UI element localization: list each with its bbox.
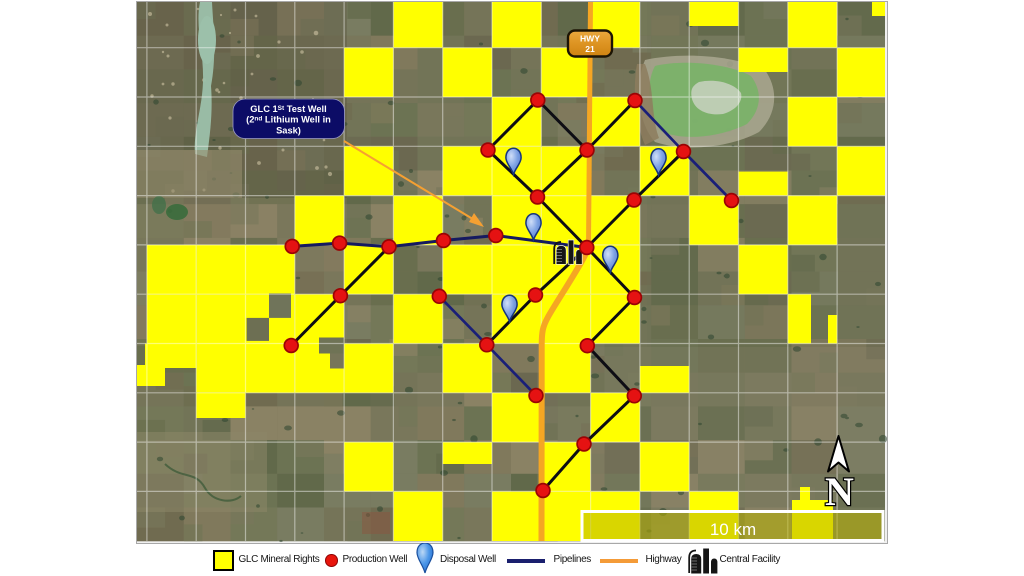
svg-text:HWY: HWY <box>580 34 600 44</box>
svg-text:GLC 1St Test Well: GLC 1St Test Well <box>250 104 326 114</box>
svg-text:10 km: 10 km <box>710 520 756 539</box>
svg-text:Sask): Sask) <box>276 125 301 135</box>
svg-text:N: N <box>825 469 854 514</box>
svg-text:21: 21 <box>585 44 595 54</box>
